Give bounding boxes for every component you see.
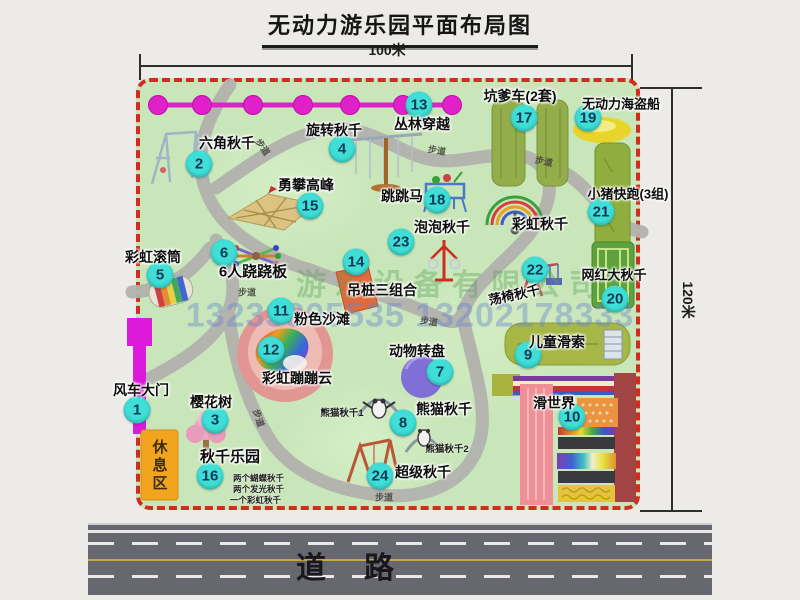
top-dimension-tick-left bbox=[139, 54, 141, 80]
right-dimension-tick-bottom bbox=[640, 510, 702, 512]
top-dimension-label: 100米 bbox=[368, 40, 405, 60]
road: 道路 bbox=[88, 523, 712, 595]
right-dimension-label: 120米 bbox=[678, 281, 698, 318]
right-dimension-tick-top bbox=[640, 87, 702, 89]
park-boundary bbox=[136, 78, 640, 510]
road-label: 道路 bbox=[88, 543, 602, 587]
top-dimension-tick-right bbox=[631, 54, 633, 80]
road-edge-line bbox=[88, 530, 712, 533]
top-dimension-line bbox=[140, 65, 633, 67]
right-dimension-line bbox=[671, 88, 673, 512]
park-plan-screenshot: 无动力游乐园平面布局图 100米 120米 bbox=[0, 0, 800, 600]
